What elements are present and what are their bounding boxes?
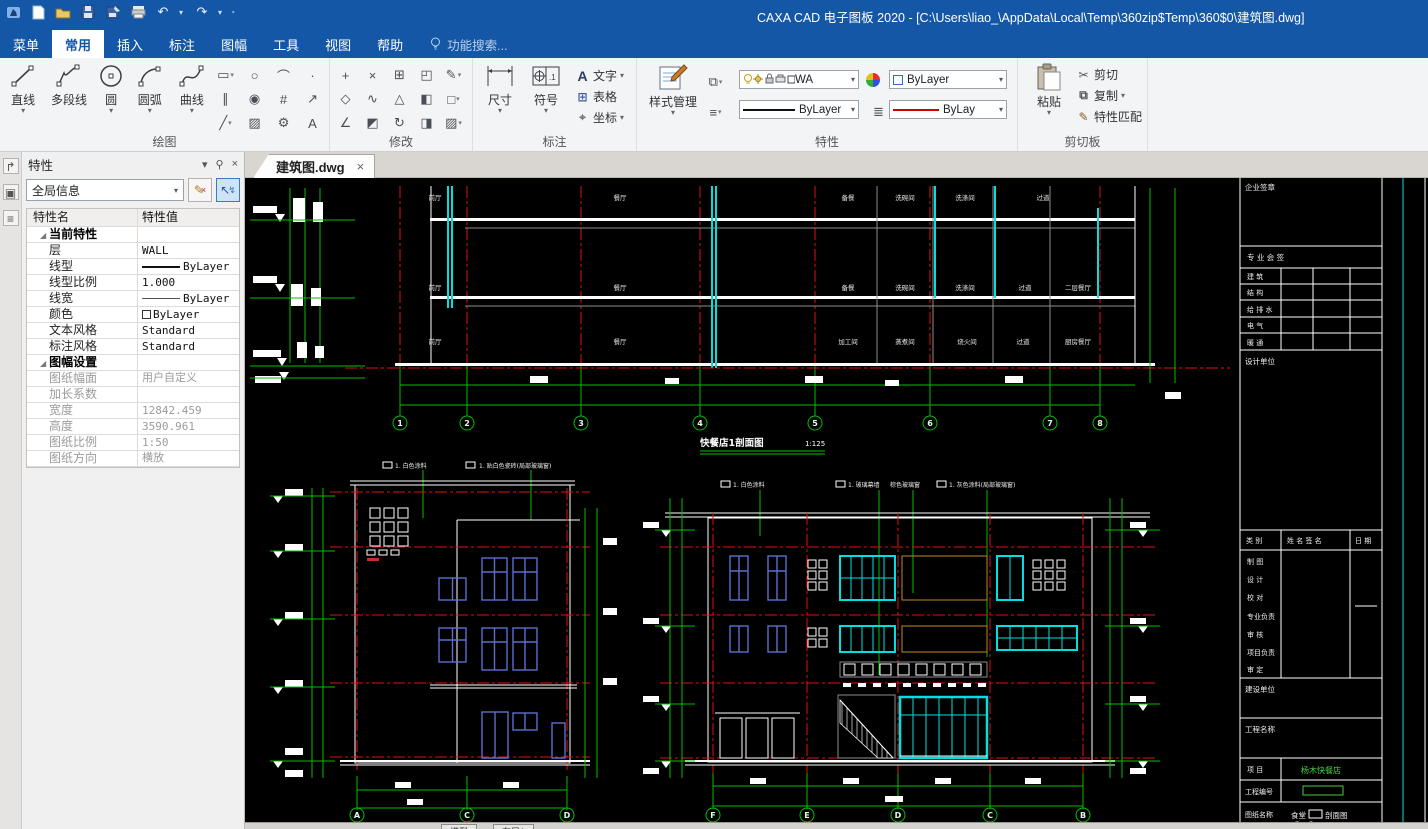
svg-text:厨房餐厅: 厨房餐厅 <box>1065 337 1092 346</box>
layer-list-icon[interactable]: ≡▾ <box>703 100 728 124</box>
svg-text:校 对: 校 对 <box>1247 593 1263 602</box>
property-row-width[interactable]: 宽度12842.459 <box>27 403 239 419</box>
linetype-preview <box>142 266 180 268</box>
arc-fit-tool-icon[interactable]: ⌒ <box>271 63 296 87</box>
style-manager-dropdown-icon[interactable]: ▾ <box>671 110 675 116</box>
svg-text:F: F <box>710 811 715 820</box>
scope-combo[interactable]: 全局信息 ▾ <box>26 179 184 201</box>
svg-text:备餐: 备餐 <box>842 193 856 202</box>
svg-text:2: 2 <box>464 419 470 428</box>
svg-text:暖 通: 暖 通 <box>1247 338 1263 347</box>
section-drawing: 1 2 3 4 5 6 7 8 <box>250 186 1230 454</box>
color-swatch <box>142 310 151 319</box>
property-row-linetype[interactable]: 线型ByLayer <box>27 259 239 275</box>
svg-text:剖面图: 剖面图 <box>1325 810 1348 820</box>
panel-pin-icon[interactable]: ⚲ <box>216 158 224 171</box>
svg-text:食堂: 食堂 <box>1291 810 1307 820</box>
text-tool-icon: A <box>575 68 590 84</box>
svg-text:E: E <box>804 811 809 820</box>
polyline-tool-icon <box>56 63 82 89</box>
svg-text:洗碗间: 洗碗间 <box>895 283 915 292</box>
right-elevation: 1. 白色涂料 1. 玻璃幕墙 棕色玻璃窗 1. 灰色涂料(局部玻璃窗) <box>643 481 1160 822</box>
seal-label: 企业签章 <box>1245 182 1275 192</box>
svg-text:餐厅: 餐厅 <box>614 193 628 202</box>
ribbon-group-clipboard: 粘贴 ▾ ✂剪切 ⧉复制▾ ✎特性匹配 剪切板 <box>1018 58 1148 151</box>
quick-select-button[interactable]: ↖↯ <box>216 178 240 202</box>
ribbon-group-annotate: 尺寸 ▾ .1 符号 ▾ A文字▾ ⊞表格 ⌖坐标▾ 标注 <box>473 58 637 151</box>
arc-dropdown-icon[interactable]: ▾ <box>148 108 152 114</box>
property-row-scale[interactable]: 图纸比例1:50 <box>27 435 239 451</box>
function-search[interactable]: 功能搜索... <box>430 30 507 58</box>
circle-tool-icon <box>98 63 124 89</box>
section-caption: 快餐店1剖面图 1:125 <box>700 437 825 454</box>
ribbon-group-properties: 样式管理 ▾ ⧉▾ ≡▾ WA ▾ ByLayer ▾ <box>637 58 1018 151</box>
undo-icon[interactable]: ↶ <box>154 3 172 21</box>
trim-icon[interactable]: ◩ <box>360 111 385 135</box>
table-tool-button[interactable]: ⊞表格 <box>575 86 624 107</box>
dimension-icon <box>485 63 515 89</box>
svg-text:前厅: 前厅 <box>429 337 443 346</box>
menu-tab-tools[interactable]: 工具 <box>260 30 312 58</box>
spline-tool-button[interactable]: 曲线 ▾ <box>171 58 213 134</box>
linetype-combo-value: ByLayer <box>799 104 841 116</box>
extend-icon[interactable]: ∿ <box>360 87 385 111</box>
menu-tab-view[interactable]: 视图 <box>312 30 364 58</box>
color-wheel-icon[interactable] <box>865 72 881 88</box>
draw-small-icons: ▭▾ ○ ⌒ · ∥ ◉ # ↗ ╱▾ ▨ ⚙ A <box>213 63 329 135</box>
property-row-ltscale[interactable]: 线型比例1.000 <box>27 275 239 291</box>
project-item-value: 杨木快餐店 <box>1301 765 1341 775</box>
svg-text:8: 8 <box>1097 419 1103 428</box>
arc-tool-icon <box>137 63 163 89</box>
panel-menu-icon[interactable]: ▾ <box>202 158 208 171</box>
menu-tab-help[interactable]: 帮助 <box>364 30 416 58</box>
cut-button[interactable]: ✂剪切 <box>1076 64 1142 85</box>
gear-tool-icon[interactable]: ⚙ <box>271 111 296 135</box>
text-circle-tool-icon[interactable]: A <box>300 111 325 135</box>
properties-palette-tab-icon[interactable]: ≡ <box>3 210 19 226</box>
ribbon: 直线 ▾ 多段线 圆 ▾ 圆弧 ▾ <box>0 58 1428 152</box>
spline-tool-icon <box>179 63 205 89</box>
svg-text:4: 4 <box>697 419 703 428</box>
svg-text:类 别: 类 别 <box>1246 536 1262 545</box>
design-unit-label: 设计单位 <box>1245 356 1275 366</box>
layer-combo[interactable]: WA ▾ <box>739 70 859 89</box>
print-icon[interactable] <box>129 3 147 21</box>
save-as-icon[interactable] <box>104 3 122 21</box>
library-palette-tab-icon[interactable]: ▣ <box>3 184 19 200</box>
paste-button[interactable]: 粘贴 ▾ <box>1028 58 1070 134</box>
hatch-tool-icon[interactable]: ▨ <box>242 111 267 135</box>
room-labels-f3: 前厅 餐厅 备餐 洗碗间 洗涤间 过道 <box>429 193 1051 202</box>
stair <box>838 695 895 758</box>
svg-text:洗涤间: 洗涤间 <box>955 283 975 292</box>
symbol-icon: .1 <box>531 63 561 89</box>
color-combo[interactable]: ByLayer ▾ <box>889 70 1007 89</box>
svg-text:备餐: 备餐 <box>842 283 856 292</box>
document-tab[interactable]: 建筑图.dwg × <box>253 154 375 178</box>
edit-icon[interactable]: ✎▾ <box>441 63 466 87</box>
build-unit-label: 建设单位 <box>1245 684 1275 694</box>
wholecircle-tool-icon[interactable]: ◉ <box>242 87 267 111</box>
panel-close-icon[interactable]: × <box>232 158 238 171</box>
layer-state-icons <box>743 73 795 86</box>
line-tool-button[interactable]: 直线 ▾ <box>2 58 44 134</box>
svg-text:蒸煮间: 蒸煮间 <box>895 337 915 346</box>
new-file-icon[interactable] <box>29 3 47 21</box>
svg-text:过道: 过道 <box>1017 337 1031 346</box>
table-tool-icon: ⊞ <box>575 90 590 104</box>
property-row-lineweight[interactable]: 线宽ByLayer <box>27 291 239 307</box>
svg-text:结 构: 结 构 <box>1247 288 1263 297</box>
model-tab[interactable]: 模型 <box>441 824 477 829</box>
copy-button[interactable]: ⧉复制▾ <box>1076 85 1142 106</box>
document-area: 建筑图.dwg × 1 2 3 4 <box>245 152 1428 829</box>
undo-dropdown-icon[interactable]: ▾ <box>179 8 186 17</box>
stretch-icon[interactable]: ◰ <box>414 63 439 87</box>
save-icon[interactable] <box>79 3 97 21</box>
mirror-icon[interactable]: △ <box>387 87 412 111</box>
clipboard-group-label: 剪切板 <box>1018 133 1147 150</box>
svg-text:加工间: 加工间 <box>838 337 858 346</box>
property-row-dimstyle[interactable]: 标注风格Standard <box>27 339 239 355</box>
svg-text:洗碗间: 洗碗间 <box>895 193 915 202</box>
layout-tab[interactable]: 布局1 <box>493 824 534 829</box>
parallel-tool-icon[interactable]: ∥ <box>213 87 238 111</box>
svg-text:B: B <box>1080 811 1086 820</box>
property-row-color[interactable]: 颜色ByLayer <box>27 307 239 323</box>
svg-text:1:125: 1:125 <box>805 440 825 448</box>
app-icon[interactable] <box>4 3 22 21</box>
svg-text:设 计: 设 计 <box>1247 575 1263 584</box>
symbol-dropdown-icon[interactable]: ▾ <box>544 108 548 114</box>
point-tool-icon[interactable]: · <box>300 63 325 87</box>
svg-text:项目负责: 项目负责 <box>1247 648 1275 657</box>
properties-panel: 特性 ▾ ⚲ × 全局信息 ▾ ✎× ↖↯ 特性名 特性值 <box>22 152 245 829</box>
linewidth-preview <box>893 109 939 111</box>
svg-text:1. 白色涂料: 1. 白色涂料 <box>733 481 765 489</box>
frame-icon[interactable]: □▾ <box>441 87 466 111</box>
svg-text:工程编号: 工程编号 <box>1245 787 1273 796</box>
svg-text:二层餐厅: 二层餐厅 <box>1065 283 1092 292</box>
layout-tab-strip: 模型 布局1 <box>245 822 1428 829</box>
cut-icon: ✂ <box>1076 68 1091 82</box>
svg-text:D: D <box>564 811 571 820</box>
svg-text:图纸名称: 图纸名称 <box>1245 810 1273 819</box>
array-icon[interactable]: ⊞ <box>387 63 412 87</box>
caxa-cad-window: ↶ ▾ ↷ ▾ ⹀ CAXA CAD 电子图板 2020 - [C:\Users… <box>0 0 1428 829</box>
menu-tab-sheet[interactable]: 图幅 <box>208 30 260 58</box>
move-icon[interactable]: + <box>333 63 358 87</box>
svg-text:项 目: 项 目 <box>1247 766 1263 774</box>
open-file-icon[interactable] <box>54 3 72 21</box>
svg-text:D: D <box>895 811 902 820</box>
copy-icon: ⧉ <box>1076 88 1091 103</box>
style-manager-icon <box>658 63 688 91</box>
modify-group-label: 修改 <box>330 133 472 150</box>
svg-text:餐厅: 餐厅 <box>614 337 628 346</box>
paste-dropdown-icon[interactable]: ▾ <box>1047 110 1051 116</box>
ellipse-tool-icon[interactable]: ○ <box>242 63 267 87</box>
property-row-orientation[interactable]: 图纸方向横放 <box>27 451 239 467</box>
linewidth-combo-value: ByLay <box>943 104 975 116</box>
project-name-label: 工程名称 <box>1245 724 1275 734</box>
arrow-tool-icon[interactable]: ↗ <box>300 87 325 111</box>
svg-text:5: 5 <box>812 419 818 428</box>
sign-header: 专 业 会 签 <box>1247 252 1285 262</box>
svg-text:审 核: 审 核 <box>1247 630 1263 639</box>
svg-text:3: 3 <box>578 419 584 428</box>
svg-text:1. 玻璃幕墙: 1. 玻璃幕墙 <box>848 481 880 489</box>
color-combo-value: ByLayer <box>907 74 949 86</box>
dimension-dropdown-icon[interactable]: ▾ <box>498 108 502 114</box>
svg-text:建 筑: 建 筑 <box>1247 272 1263 281</box>
linetype-preview <box>743 109 795 111</box>
window-title: CAXA CAD 电子图板 2020 - [C:\Users\liao_\App… <box>757 7 1304 26</box>
svg-text:1. 灰色涂料(局部玻璃窗): 1. 灰色涂料(局部玻璃窗) <box>949 481 1015 489</box>
properties-table-header: 特性名 特性值 <box>27 209 239 227</box>
style-manager-button[interactable]: 样式管理 ▾ <box>645 58 701 134</box>
explode-icon[interactable]: ◨ <box>414 111 439 135</box>
text-tool-button[interactable]: A文字▾ <box>575 65 624 86</box>
rotate-icon[interactable]: ↻ <box>387 111 412 135</box>
quick-access-toolbar: ↶ ▾ ↷ ▾ ⹀ <box>4 3 239 21</box>
property-row-layer[interactable]: 层WALL <box>27 243 239 259</box>
customize-toolbar-icon[interactable]: ⹀ <box>232 7 239 18</box>
draw-group-label: 绘图 <box>0 133 329 150</box>
svg-text:专业负责: 专业负责 <box>1247 612 1275 621</box>
properties-panel-title: 特性 <box>28 155 53 174</box>
scale-icon[interactable]: ◧ <box>414 87 439 111</box>
properties-table: 特性名 特性值 ◢当前特性 层WALL 线型ByLayer 线型比例1.000 … <box>26 208 240 468</box>
svg-text:姓 名 签 名: 姓 名 签 名 <box>1287 536 1322 545</box>
layer-combo-value: WA <box>795 74 813 86</box>
tab-close-icon[interactable]: × <box>357 159 365 174</box>
rectangle-tool-icon[interactable]: ▭▾ <box>213 63 238 87</box>
paste-icon <box>1036 63 1062 91</box>
lineweight-preview <box>142 298 180 299</box>
svg-text:过道: 过道 <box>1019 283 1033 292</box>
svg-text:电 气: 电 气 <box>1247 321 1263 330</box>
copy-move-icon[interactable]: ◇ <box>333 87 358 111</box>
cad-canvas[interactable]: 1 2 3 4 5 6 7 8 <box>245 178 1428 822</box>
linetype-combo[interactable]: ByLayer ▾ <box>739 100 859 119</box>
edit-properties-button[interactable]: ✎× <box>188 178 212 202</box>
arc-tool-button[interactable]: 圆弧 ▾ <box>129 58 171 134</box>
annotate-group-label: 标注 <box>473 133 636 150</box>
ribbon-group-draw: 直线 ▾ 多段线 圆 ▾ 圆弧 ▾ <box>0 58 330 151</box>
property-row-textstyle[interactable]: 文本风格Standard <box>27 323 239 339</box>
svg-text:过道: 过道 <box>1037 193 1051 202</box>
svg-text:洗涤间: 洗涤间 <box>955 193 975 202</box>
svg-text:.1: .1 <box>549 73 556 82</box>
layer-transfer-icon[interactable]: ⧉▾ <box>703 70 728 94</box>
left-elevation: 1. 白色涂料 1. 贴白色瓷砖(局部玻璃窗) <box>270 462 617 822</box>
search-placeholder: 功能搜索... <box>447 35 507 54</box>
menu-tab-insert[interactable]: 插入 <box>104 30 156 58</box>
line-tool-icon <box>10 63 36 89</box>
svg-text:快餐店1剖面图: 快餐店1剖面图 <box>700 437 764 449</box>
erase-icon[interactable]: ▨▾ <box>441 111 466 135</box>
side-dock-strip: ↱ ▣ ≡ <box>0 152 22 829</box>
svg-text:审 定: 审 定 <box>1247 665 1263 674</box>
lineweight-icon[interactable]: ≣ <box>866 100 891 124</box>
match-properties-icon: ✎ <box>1076 110 1091 124</box>
svg-text:A: A <box>354 811 361 820</box>
coordinate-tool-button[interactable]: ⌖坐标▾ <box>575 107 624 128</box>
properties-group-label: 特性 <box>637 133 1017 150</box>
menu-tab-annotate[interactable]: 标注 <box>156 30 208 58</box>
title-block: 企业签章 专 业 会 签 建 筑 结 构 给 排 水 电 气 暖 通 设计单位 … <box>1240 178 1425 822</box>
dimension-button[interactable]: 尺寸 ▾ <box>477 58 523 134</box>
workspace: ↱ ▣ ≡ 特性 ▾ ⚲ × 全局信息 ▾ ✎× ↖↯ <box>0 152 1428 829</box>
svg-text:1: 1 <box>397 419 403 428</box>
modify-icons: + × ⊞ ◰ ✎▾ ◇ ∿ △ ◧ □▾ ∠ ◩ ↻ ◨ ▨▾ <box>333 63 472 135</box>
circle-dropdown-icon[interactable]: ▾ <box>109 108 113 114</box>
svg-text:前厅: 前厅 <box>429 283 443 292</box>
linewidth-combo[interactable]: ByLay ▾ <box>889 100 1007 119</box>
property-row-height[interactable]: 高度3590.961 <box>27 419 239 435</box>
ribbon-group-modify: + × ⊞ ◰ ✎▾ ◇ ∿ △ ◧ □▾ ∠ ◩ ↻ ◨ ▨▾ 修改 <box>330 58 473 151</box>
document-tabbar: 建筑图.dwg × <box>245 152 1428 178</box>
svg-text:棕色玻璃窗: 棕色玻璃窗 <box>890 481 920 489</box>
axle-tool-icon[interactable]: # <box>271 87 296 111</box>
svg-text:制 图: 制 图 <box>1247 557 1263 566</box>
match-properties-button[interactable]: ✎特性匹配 <box>1076 106 1142 127</box>
angleline-tool-icon[interactable]: ╱▾ <box>213 111 238 135</box>
svg-text:6: 6 <box>927 419 933 428</box>
titlebar: ↶ ▾ ↷ ▾ ⹀ CAXA CAD 电子图板 2020 - [C:\Users… <box>0 0 1428 30</box>
redo-icon[interactable]: ↷ <box>193 3 211 21</box>
svg-text:餐厅: 餐厅 <box>614 283 628 292</box>
menubar: 菜单 常用 插入 标注 图幅 工具 视图 帮助 功能搜索... <box>0 30 1428 58</box>
svg-text:7: 7 <box>1047 419 1053 428</box>
spline-dropdown-icon[interactable]: ▾ <box>190 108 194 114</box>
symbol-button[interactable]: .1 符号 ▾ <box>523 58 569 134</box>
redo-dropdown-icon[interactable]: ▾ <box>218 8 225 17</box>
menu-tab-menu[interactable]: 菜单 <box>0 30 52 58</box>
coordinate-tool-icon: ⌖ <box>575 110 590 125</box>
color-swatch-icon <box>893 75 903 85</box>
property-group-row[interactable]: ◢图幅设置 <box>27 355 239 371</box>
break-icon[interactable]: × <box>360 63 385 87</box>
svg-text:烧火间: 烧火间 <box>957 337 977 346</box>
svg-text:给 排 水: 给 排 水 <box>1247 305 1272 314</box>
room-labels-f2: 前厅 餐厅 备餐 洗碗间 洗涤间 过道 二层餐厅 <box>429 283 1092 292</box>
fillet-icon[interactable]: ∠ <box>333 111 358 135</box>
svg-text:1. 白色涂料: 1. 白色涂料 <box>395 462 427 470</box>
svg-text:C: C <box>987 811 993 820</box>
section-left-dims <box>250 188 365 383</box>
svg-text:日 期: 日 期 <box>1355 537 1371 545</box>
menu-tab-home[interactable]: 常用 <box>52 30 104 58</box>
svg-text:C: C <box>464 811 470 820</box>
search-bulb-icon <box>430 37 441 51</box>
property-row-lengthen[interactable]: 加长系数 <box>27 387 239 403</box>
room-labels-f1: 前厅 餐厅 加工间 蒸煮间 烧火间 过道 厨房餐厅 <box>429 337 1092 346</box>
circle-tool-button[interactable]: 圆 ▾ <box>94 58 129 134</box>
polyline-tool-button[interactable]: 多段线 <box>44 58 94 134</box>
svg-text:1. 贴白色瓷砖(局部玻璃窗): 1. 贴白色瓷砖(局部玻璃窗) <box>479 462 551 470</box>
spec-palette-tab-icon[interactable]: ↱ <box>3 158 19 174</box>
svg-text:前厅: 前厅 <box>429 193 443 202</box>
line-dropdown-icon[interactable]: ▾ <box>21 108 25 114</box>
property-row-sheetsize[interactable]: 图纸幅面用户自定义 <box>27 371 239 387</box>
property-group-row[interactable]: ◢当前特性 <box>27 227 239 243</box>
